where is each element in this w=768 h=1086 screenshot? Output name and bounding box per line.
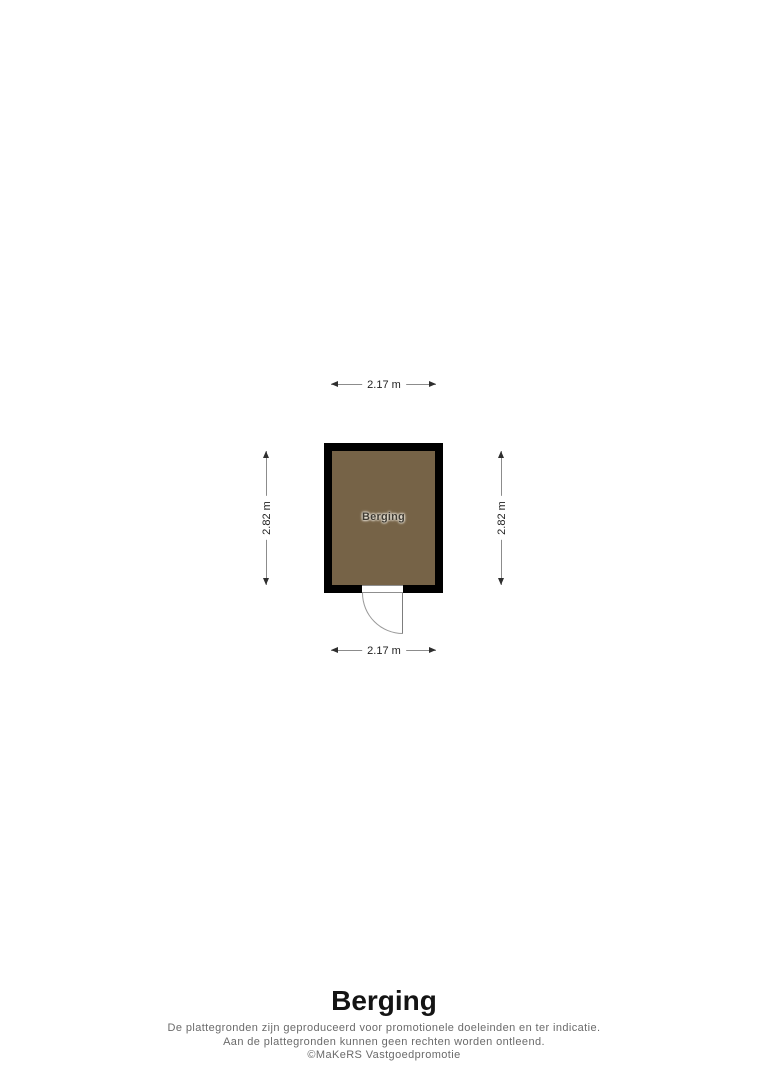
arrow-right-icon	[429, 647, 436, 653]
arrow-down-icon	[498, 578, 504, 585]
door-opening	[362, 585, 403, 593]
arrow-left-icon	[331, 647, 338, 653]
arrow-left-icon	[331, 381, 338, 387]
floorplan-page: 2.17 m 2.82 m 2.82 m 2.17 m Berging	[0, 0, 768, 1086]
dimension-label-width-top: 2.17 m	[362, 379, 406, 391]
dimension-label-width-bottom: 2.17 m	[362, 645, 406, 657]
disclaimer: De plattegronden zijn geproduceerd voor …	[0, 1022, 768, 1063]
floorplan: 2.17 m 2.82 m 2.82 m 2.17 m Berging	[0, 0, 768, 1086]
disclaimer-line-2: Aan de plattegronden kunnen geen rechten…	[0, 1036, 768, 1050]
arrow-right-icon	[429, 381, 436, 387]
credit-line: ©MaKeRS Vastgoedpromotie	[0, 1049, 768, 1063]
disclaimer-line-1: De plattegronden zijn geproduceerd voor …	[0, 1022, 768, 1036]
dimension-label-height-right: 2.82 m	[496, 496, 508, 540]
arrow-up-icon	[263, 451, 269, 458]
arrow-down-icon	[263, 578, 269, 585]
page-title: Berging	[0, 986, 768, 1016]
dimension-label-height-left: 2.82 m	[261, 496, 273, 540]
room-label: Berging	[332, 511, 435, 523]
door-swing-arc	[362, 593, 403, 634]
arrow-up-icon	[498, 451, 504, 458]
